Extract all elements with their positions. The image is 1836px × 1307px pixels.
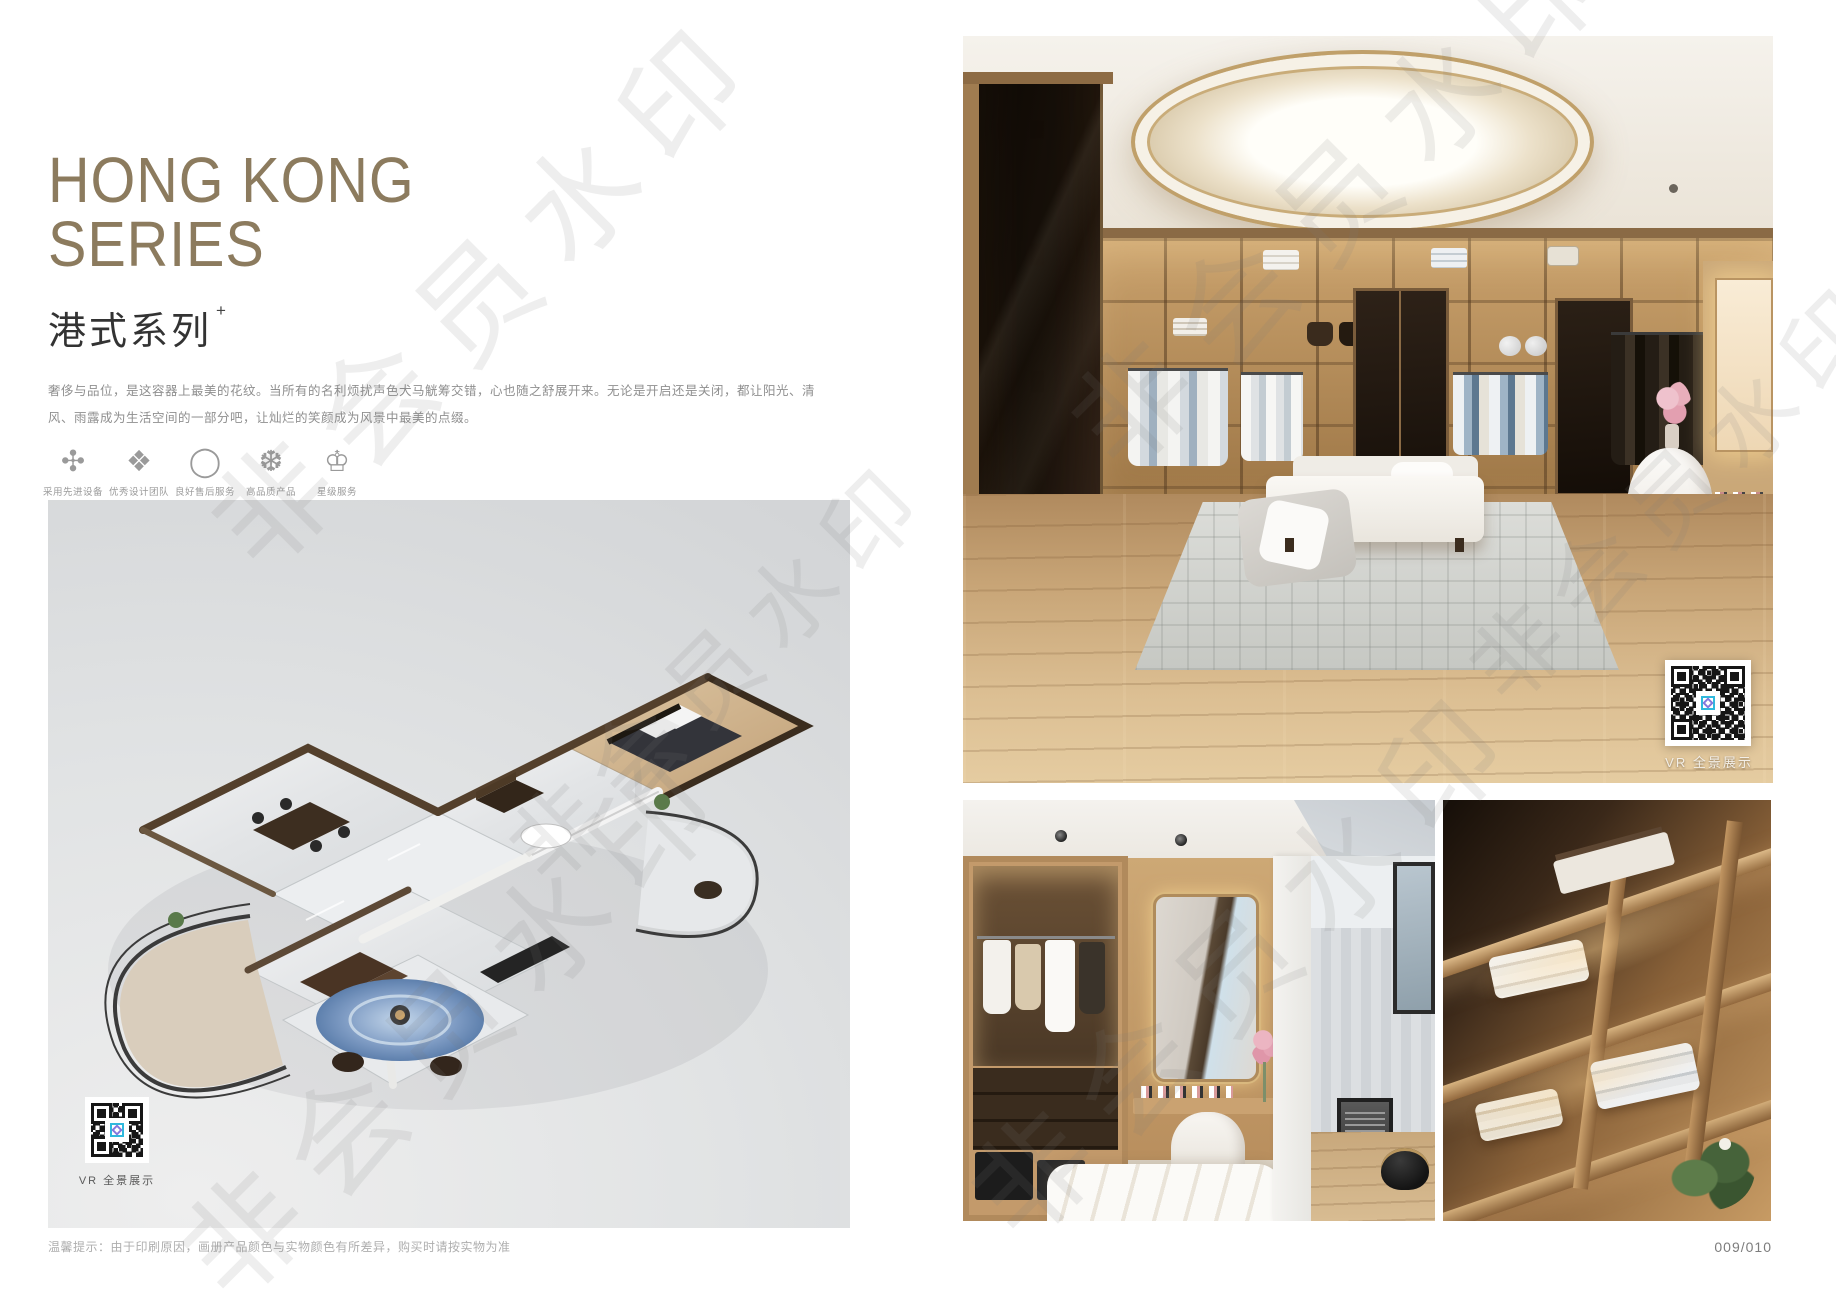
white-column — [1273, 856, 1311, 1221]
qr-finder-icon — [1724, 666, 1745, 687]
helmet — [1499, 336, 1521, 356]
floorplan-qr-code — [85, 1097, 149, 1163]
ceiling-spotlight-icon — [1669, 184, 1678, 193]
feature-label: 良好售后服务 — [172, 484, 238, 498]
series-description: 奢侈与品位，是这容器上最美的花纹。当所有的名利烦扰声色犬马觥筹交错，心也随之舒展… — [48, 378, 708, 432]
qr-finder-icon — [1671, 666, 1692, 687]
feature-list: ✣ 采用先进设备 ❖ 优秀设计团队 ◯ 良好售后服务 ❆ 高品质产品 ♔ 星级服… — [40, 444, 370, 498]
catalog-page: HONG KONG SERIES 港式系列+ 奢侈与品位，是这容器上最美的花纹。… — [0, 0, 1836, 1307]
plant-flower — [1719, 1138, 1731, 1150]
pinwheel-icon: ✣ — [40, 444, 106, 478]
hero-photo-walkin-closet: VR 全景展示 — [963, 36, 1773, 783]
hanging-clothes-light — [1241, 372, 1303, 461]
subtitle-plus: + — [216, 301, 229, 320]
feature-item: ❆ 高品质产品 — [238, 444, 304, 498]
feature-label: 高品质产品 — [238, 484, 304, 498]
series-title-line2: SERIES — [48, 212, 415, 276]
description-line: 奢侈与品位，是这容器上最美的花纹。当所有的名利烦扰声色犬马觥筹交错，心也随之舒展… — [48, 378, 708, 405]
storage-box — [975, 1152, 1033, 1200]
clothes-rod — [977, 936, 1115, 939]
series-title: HONG KONG SERIES — [48, 148, 415, 276]
flower-vase — [1665, 424, 1679, 450]
snowflake-icon: ❆ — [238, 444, 304, 478]
series-title-line1: HONG KONG — [48, 148, 415, 212]
hanging-clothes-mixed — [1453, 372, 1548, 455]
crown-icon: ♔ — [304, 444, 370, 478]
white-sheet-fold — [1257, 498, 1331, 572]
hanging-garment — [1015, 944, 1041, 1010]
bench-leg — [1285, 538, 1294, 552]
picture-caption-lines — [1345, 1112, 1385, 1132]
floorplan-3d-render — [48, 500, 850, 1228]
hanging-garment — [1045, 940, 1075, 1032]
ring-icon: ◯ — [172, 444, 238, 478]
handbag — [1307, 322, 1333, 346]
folded-clothes — [1173, 318, 1207, 336]
feature-item: ♔ 星级服务 — [304, 444, 370, 498]
hat-box — [1547, 246, 1579, 266]
vr-cube-icon — [105, 1118, 129, 1142]
folded-clothes — [1431, 248, 1467, 268]
feature-item: ✣ 采用先进设备 — [40, 444, 106, 498]
feature-item: ❖ 优秀设计团队 — [106, 444, 172, 498]
ceiling-cove-light — [1131, 50, 1594, 234]
hanging-clothes-light — [1128, 368, 1228, 466]
drawer-unit — [973, 1068, 1118, 1150]
plant-leaves — [1669, 1130, 1755, 1210]
hero-qr-code — [1665, 660, 1751, 746]
black-pouf-table — [1381, 1148, 1429, 1190]
vanity-mirror — [1715, 278, 1773, 452]
feature-label: 采用先进设备 — [40, 484, 106, 498]
feature-item: ◯ 良好售后服务 — [172, 444, 238, 498]
hanging-garment — [983, 940, 1011, 1014]
series-subtitle-cn: 港式系列+ — [48, 300, 229, 355]
tall-glass-wardrobe — [963, 72, 1113, 84]
hanging-garment — [1079, 942, 1105, 1014]
floorplan-panel: VR 全景展示 — [48, 500, 850, 1228]
helmet — [1525, 336, 1547, 356]
hero-qr-caption: VR 全景展示 — [1651, 752, 1767, 771]
description-line: 风、雨露成为生活空间的一部分吧，让灿烂的笑颜成为风景中最美的点缀。 — [48, 405, 708, 432]
print-disclaimer: 温馨提示：由于印刷原因，画册产品颜色与实物颜色有所差异，购买时请按实物为准 — [48, 1238, 511, 1255]
pink-flowers — [1655, 380, 1691, 426]
subtitle-text: 港式系列 — [48, 311, 212, 353]
wardrobe-crown — [1088, 228, 1773, 238]
vanity-mirror — [1153, 894, 1259, 1082]
flower-stem — [1263, 1062, 1266, 1102]
bench-leg — [1455, 538, 1464, 552]
qr-finder-icon — [1671, 719, 1692, 740]
feature-label: 星级服务 — [304, 484, 370, 498]
floorplan-qr-caption: VR 全景展示 — [62, 1172, 172, 1188]
photo-shelf-closeup — [1443, 800, 1771, 1221]
white-duvet — [1047, 1164, 1283, 1221]
folded-clothes — [1263, 250, 1299, 270]
vr-cube-icon — [1696, 691, 1720, 715]
page-number: 009/010 — [1714, 1239, 1772, 1255]
glass-door — [1393, 862, 1435, 1014]
ceiling-spotlight-icon — [1055, 830, 1067, 842]
feature-label: 优秀设计团队 — [106, 484, 172, 498]
cosmetics — [1141, 1086, 1233, 1098]
ceiling-spotlight-icon — [1175, 834, 1187, 846]
diamond-ornament-icon: ❖ — [106, 444, 172, 478]
photo-vanity-corner — [963, 800, 1435, 1221]
